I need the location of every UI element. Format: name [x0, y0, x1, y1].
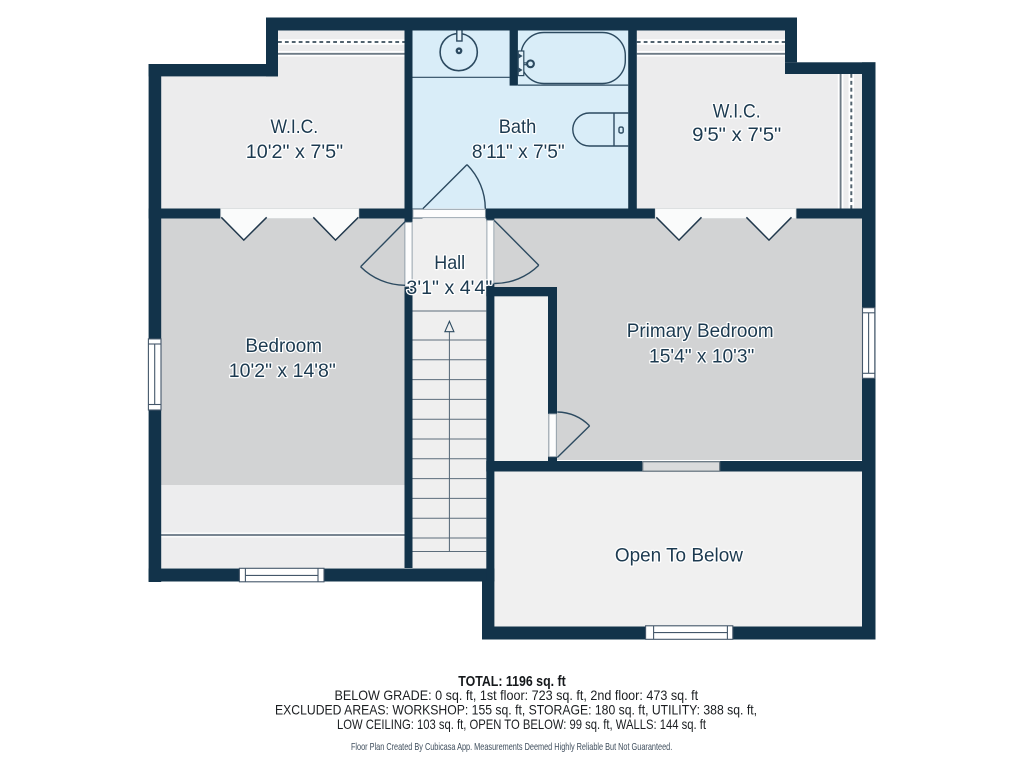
svg-text:EXCLUDED AREAS: WORKSHOP: 155: EXCLUDED AREAS: WORKSHOP: 155 sq. ft, ST…	[275, 702, 757, 718]
svg-text:Bath: Bath	[499, 116, 537, 138]
svg-text:Open To Below: Open To Below	[615, 544, 744, 566]
svg-text:Primary Bedroom: Primary Bedroom	[627, 320, 774, 342]
svg-text:8'11" x 7'5": 8'11" x 7'5"	[472, 141, 565, 163]
svg-text:15'4" x 10'3": 15'4" x 10'3"	[649, 346, 754, 368]
svg-text:BELOW GRADE: 0 sq. ft, 1st flo: BELOW GRADE: 0 sq. ft, 1st floor: 723 sq…	[334, 687, 698, 703]
svg-text:10'2" x 14'8": 10'2" x 14'8"	[229, 360, 336, 382]
svg-text:Bedroom: Bedroom	[245, 335, 322, 357]
svg-text:W.I.C.: W.I.C.	[713, 100, 761, 122]
svg-text:3'1" x 4'4": 3'1" x 4'4"	[406, 277, 492, 299]
svg-text:Floor Plan Created By Cubicasa: Floor Plan Created By Cubicasa App. Meas…	[351, 741, 672, 753]
svg-text:LOW CEILING: 103 sq. ft, OPEN: LOW CEILING: 103 sq. ft, OPEN TO BELOW: …	[337, 716, 706, 732]
svg-text:W.I.C.: W.I.C.	[270, 116, 318, 138]
svg-text:Hall: Hall	[434, 252, 465, 274]
svg-text:9'5" x 7'5": 9'5" x 7'5"	[692, 124, 781, 146]
svg-text:10'2" x 7'5": 10'2" x 7'5"	[246, 141, 343, 163]
